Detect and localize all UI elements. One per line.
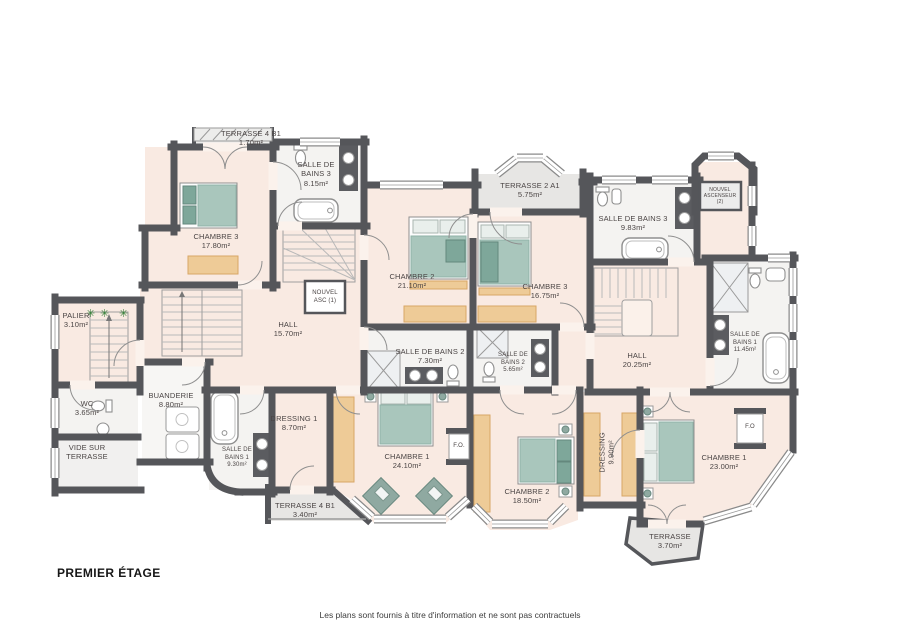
room-label-sdb1-west: SALLE DEBAINS 19.30m² [207,447,267,470]
floor-plan-drawing: ✳ ✳ ✳ [0,0,900,636]
room-label-terrasse-4b1-south: TERRASSE 4 B13.40m² [260,501,350,520]
page-title: PREMIER ÉTAGE [57,566,161,580]
room-label-terrasse-south: TERRASSE3.70m² [625,532,715,551]
room-label-sdb3-west: SALLE DEBAINS 38.15m² [271,160,361,188]
label-elevator-2: NOUVELASCENSEUR(2) [698,188,742,205]
room-label-palier: PALIER3.10m² [31,311,121,330]
room-label-buanderie: BUANDERIE8.80m² [126,391,216,410]
room-label-dressing-east: DRESSING9.90m² [598,417,617,487]
label-elevator-1: NOUVELASC (1) [295,290,355,305]
room-label-sdb2-west: SALLE DE BAINS 27.30m² [385,347,475,366]
room-label-sdb2-east: SALLE DEBAINS 25.65m² [483,352,543,375]
room-label-wc: WC3.65m² [42,399,132,418]
room-label-chambre2-south: CHAMBRE 218.50m² [482,487,572,506]
floor-plan-page: ✳ ✳ ✳ TERRASSE 4 B11.70m² SALLE DEBAINS … [0,0,900,636]
room-label-hall-east: HALL20.25m² [592,351,682,370]
room-label-dressing1: DRESSING 18.70m² [249,414,339,433]
label-fireplace-east: F.O [720,424,780,432]
room-label-chambre2-top: CHAMBRE 221.10m² [367,272,457,291]
room-label-chambre1-southwest: CHAMBRE 124.10m² [362,452,452,471]
room-label-sdb3-east: SALLE DE BAINS 39.83m² [588,214,678,233]
label-fireplace-west: F.O. [429,443,489,451]
room-label-chambre3-east: CHAMBRE 316.75m² [500,282,590,301]
disclaimer-text: Les plans sont fournis à titre d'informa… [0,610,900,620]
room-label-chambre1-east: CHAMBRE 123.00m² [679,453,769,472]
room-label-hall-west: HALL15.70m² [243,320,333,339]
bed-chambre3-east [478,222,531,286]
room-label-terrasse-4b1-top: TERRASSE 4 B11.70m² [206,129,296,148]
room-label-terrasse-2a1: TERRASSE 2 A15.75m² [485,181,575,200]
room-label-chambre3-west: CHAMBRE 317.80m² [171,232,261,251]
room-label-sdb1-east: SALLE DEBAINS 111.45m² [715,332,775,355]
bed-chambre2-top [409,217,468,279]
room-label-vide-sur-terrasse: VIDE SURTERRASSE [42,443,132,462]
bed-chambre3-west [180,183,237,228]
